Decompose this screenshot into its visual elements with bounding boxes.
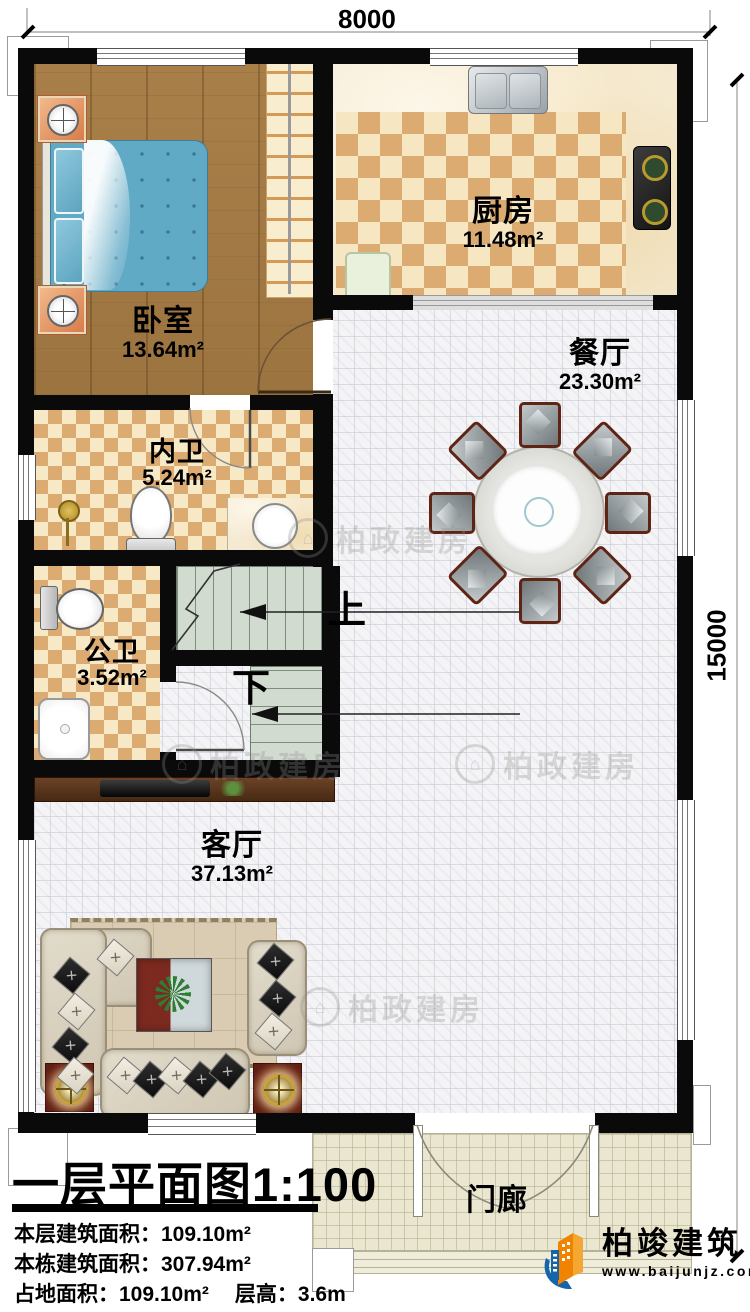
wall [313,64,333,322]
sink-basin [509,73,541,109]
stair-down-label: 下 [232,670,270,708]
dimension-height: 15000 [702,601,733,691]
wall [18,48,34,455]
burner-icon [642,199,668,225]
exterior-sill-right-bottom [693,1085,711,1145]
porch-label: 门廊 [466,1185,528,1217]
window [18,840,36,1112]
wall [18,1113,148,1133]
window [148,1113,256,1135]
company-logo: 柏竣建筑 www.baijunjz.com [538,1228,750,1292]
wall [333,295,413,310]
wall [313,392,333,567]
tv [100,780,210,797]
ensuite-label: 内卫5.24m² [142,438,212,489]
sink-basin [475,73,507,109]
wall [245,48,430,64]
nightstand [38,286,86,334]
total-area-row: 本栋建筑面积：307.94m² [14,1248,251,1278]
public-bath-label: 公卫3.52m² [77,638,147,689]
lazy-susan-icon [524,497,554,527]
shower-tray [38,698,90,760]
wall [18,550,333,566]
lamp-icon [263,1074,295,1106]
window [677,800,695,1040]
toilet [130,486,172,544]
wall [18,760,340,777]
dining-chair [519,578,561,624]
dining-chair [519,402,561,448]
wash-basin [252,503,298,549]
window [18,455,36,520]
dining-chair [429,492,475,534]
window [97,48,245,66]
table-lamp-icon [47,104,79,136]
stair-up-label: 上 [328,592,366,630]
land-area-row: 占地面积：109.10m²层高：3.6m [14,1278,346,1308]
kitchen-label: 厨房11.48m² [463,196,544,251]
floor-drain-icon [58,500,80,522]
wall [677,556,693,800]
title-underline [12,1204,318,1212]
burner-icon [642,155,668,181]
nightstand [38,96,86,142]
bedroom-door-opening [313,320,333,394]
dimension-width: 8000 [338,4,396,35]
bed-pillow [54,218,84,284]
wall [595,1113,693,1133]
toilet [56,588,104,630]
dining-chair [605,492,651,534]
living-label: 客厅37.13m² [191,830,273,885]
dining-label: 餐厅23.30m² [559,338,641,393]
drain-handle [66,518,69,546]
wall [18,520,34,840]
wall [250,395,333,410]
bedroom-label: 卧室13.64m² [122,306,204,361]
stair-flight-up [176,566,324,652]
company-website: www.baijunjz.com [602,1263,750,1279]
dimension-tick [731,74,743,86]
floor-area-row: 本层建筑面积：109.10m² [14,1218,251,1248]
entry-door-leaf [589,1125,599,1217]
ensuite-door-opening [190,395,250,410]
decor-plant-icon [218,781,248,796]
company-logo-icon [538,1228,596,1292]
end-table [253,1063,302,1114]
window [677,400,695,556]
wall [677,48,693,400]
plant-icon [155,976,191,1012]
table-lamp-icon [47,295,79,327]
bed-pillow [54,148,84,214]
kitchen-opening-threshold [413,295,653,310]
wall [167,650,340,666]
floor-plan-canvas: ✕ ✕ ✕ ✕ ✕ ✕ ✕ ✕ ✕ ✕ ✕ ✕ ✕ [0,0,750,1312]
wall [578,48,693,64]
company-name: 柏竣建筑 [602,1228,750,1259]
wall [256,1113,415,1133]
gas-stove [633,146,671,230]
window [430,48,578,66]
wardrobe-rail [288,64,291,294]
entry-door-leaf [413,1125,423,1217]
wall [653,295,677,310]
kitchen-sink [468,66,548,114]
wall [18,395,190,410]
kitchen-appliance [345,252,391,300]
dimension-tick [704,26,716,38]
shower-drain-icon [60,724,70,734]
